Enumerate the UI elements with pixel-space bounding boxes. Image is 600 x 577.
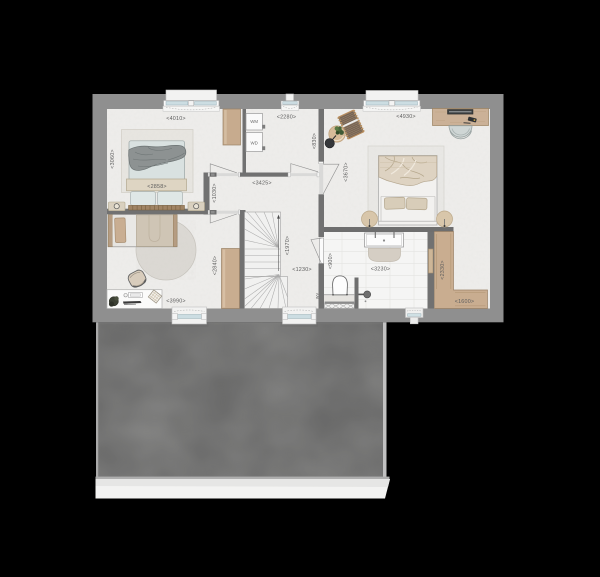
svg-text:<2858>: <2858> bbox=[147, 184, 167, 190]
svg-text:<3670>: <3670> bbox=[343, 162, 349, 182]
svg-text:<1230>: <1230> bbox=[292, 267, 312, 273]
svg-text:<3060>: <3060> bbox=[110, 149, 116, 169]
svg-text:<2330>: <2330> bbox=[440, 260, 446, 280]
svg-text:WD: WD bbox=[251, 140, 258, 145]
svg-text:<900>: <900> bbox=[328, 253, 334, 269]
svg-text:<4010>: <4010> bbox=[166, 116, 186, 122]
svg-text:<830>: <830> bbox=[312, 133, 318, 149]
svg-text:<3425>: <3425> bbox=[252, 181, 272, 187]
svg-text:<2840>: <2840> bbox=[212, 256, 218, 276]
svg-text:<2280>: <2280> bbox=[277, 114, 297, 120]
svg-text:<1600>: <1600> bbox=[455, 299, 475, 305]
svg-text:WM: WM bbox=[250, 119, 258, 124]
svg-text:<3990>: <3990> bbox=[166, 298, 186, 304]
svg-text:<4930>: <4930> bbox=[396, 114, 416, 120]
svg-text:<1970>: <1970> bbox=[285, 236, 291, 256]
svg-text:WV: WV bbox=[315, 292, 319, 299]
svg-text:<1030>: <1030> bbox=[212, 183, 218, 203]
svg-text:<3230>: <3230> bbox=[371, 267, 391, 273]
